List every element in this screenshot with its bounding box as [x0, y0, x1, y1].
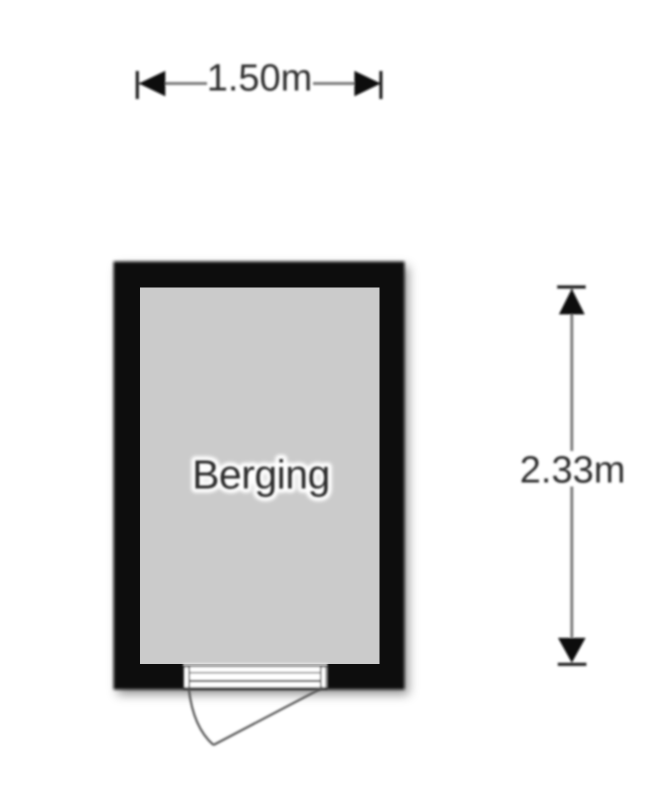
svg-text:2.33m: 2.33m: [520, 449, 626, 491]
svg-text:1.50m: 1.50m: [207, 58, 313, 100]
svg-text:Berging: Berging: [192, 452, 330, 498]
